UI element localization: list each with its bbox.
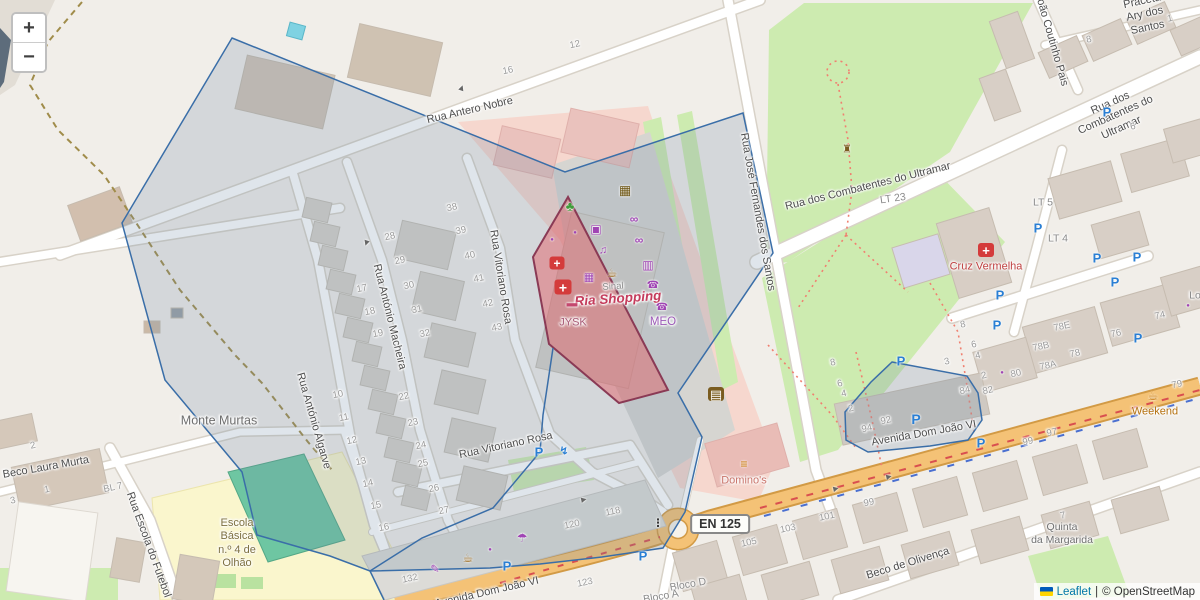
zoom-in-button[interactable]: +	[13, 14, 45, 42]
map-canvas[interactable]: Rua Antero NobreRua Vitoriano RosaRua Vi…	[0, 0, 1200, 600]
attribution-separator: |	[1095, 586, 1098, 598]
ukraine-flag-icon	[1040, 587, 1053, 596]
overlay-layers	[0, 0, 1200, 600]
openstreetmap-credit[interactable]: © OpenStreetMap	[1102, 586, 1195, 598]
zoom-out-button[interactable]: −	[13, 42, 45, 71]
small-area-polygon[interactable]	[845, 362, 982, 452]
search-area-polygon[interactable]	[122, 38, 773, 571]
attribution-bar: Leaflet | © OpenStreetMap	[1034, 583, 1200, 600]
leaflet-link[interactable]: Leaflet	[1057, 586, 1092, 598]
road-ref-badge: EN 125	[690, 514, 750, 534]
zoom-control: + −	[11, 12, 47, 73]
